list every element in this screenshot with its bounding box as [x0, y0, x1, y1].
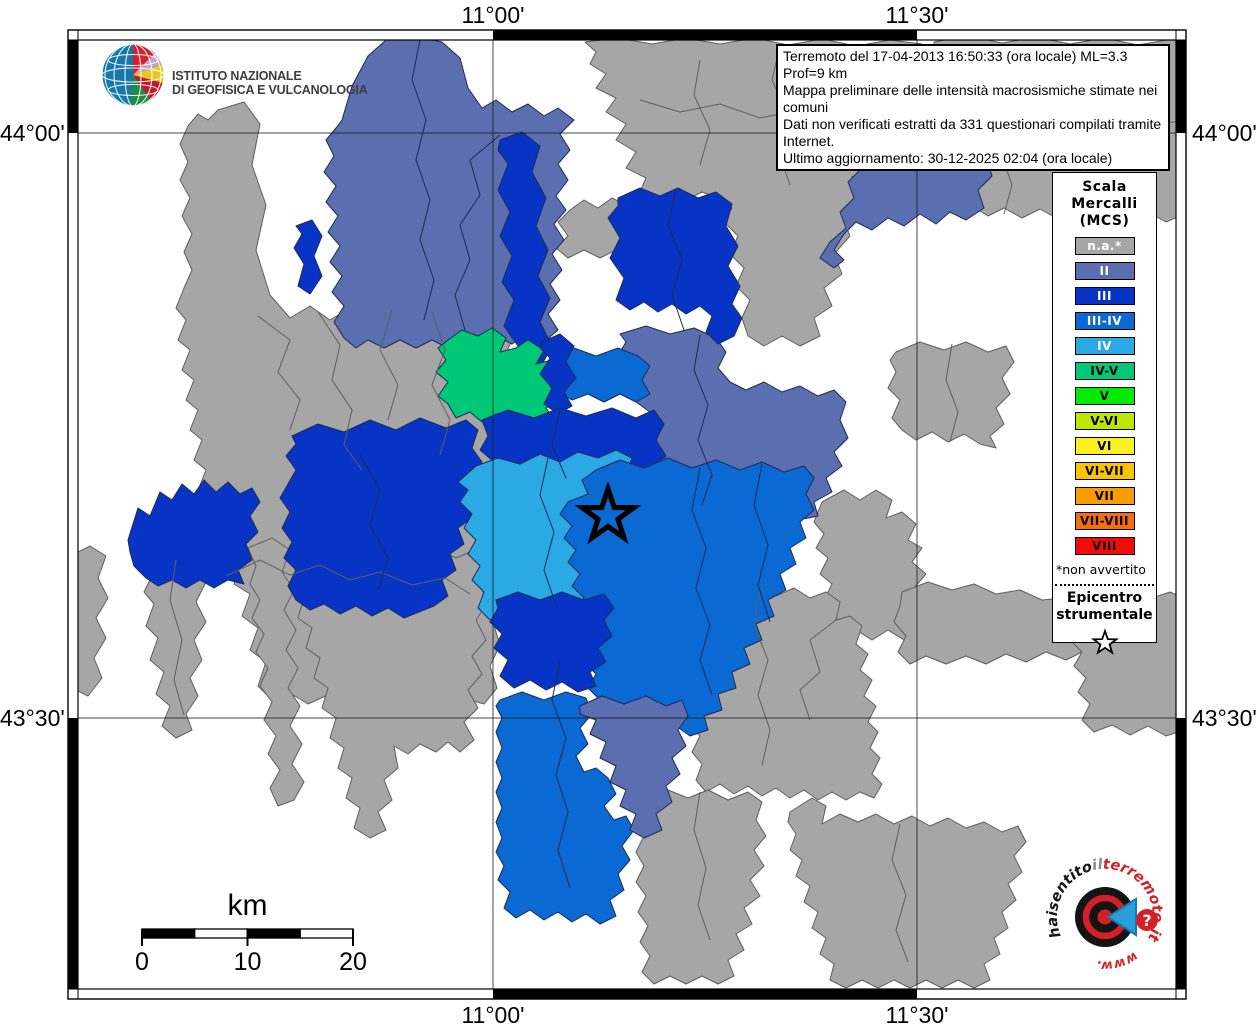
legend-swatch-VII: VII: [1075, 487, 1135, 505]
legend-swatch-IV-V: IV-V: [1075, 362, 1135, 380]
axis-label: 11°00': [461, 1002, 524, 1024]
info-line: Ultimo aggiornamento: 30-12-2025 02:04 (…: [783, 150, 1163, 167]
legend-swatch-V-VI: V-VI: [1075, 412, 1135, 430]
map-screenshot: km01020 Terremoto del 17-04-2013 16:50:3…: [0, 0, 1256, 1024]
scalebar-tick-label: 10: [234, 948, 262, 976]
scalebar-title: km: [228, 889, 268, 922]
legend-title: Scala Mercalli (MCS): [1053, 179, 1156, 230]
legend-swatch-V: V: [1075, 387, 1135, 405]
legend-scale-items: n.a.*IIIIIIII-IVIVIV-VVV-VIVIVI-VIIVIIVI…: [1053, 237, 1156, 555]
legend-divider: [1055, 584, 1154, 586]
info-line: Mappa preliminare delle intensità macros…: [783, 82, 1163, 116]
axis-label: 11°00': [461, 2, 524, 29]
legend-swatch-VIII: VIII: [1075, 537, 1135, 555]
axis-label: 43°30': [0, 705, 62, 732]
ingv-name: ISTITUTO NAZIONALE DI GEOFISICA E VULCAN…: [172, 70, 412, 97]
legend-swatch-VI: VI: [1075, 437, 1135, 455]
legend-swatch-III: III: [1075, 287, 1135, 305]
ingv-globe-icon: [100, 42, 166, 108]
legend-swatch-VII-VIII: VII-VIII: [1075, 512, 1135, 530]
earthquake-info-box: Terremoto del 17-04-2013 16:50:33 (ora l…: [776, 44, 1170, 171]
legend-swatch-III-IV: III-IV: [1075, 312, 1135, 330]
legend-panel: Scala Mercalli (MCS) n.a.*IIIIIIII-IVIVI…: [1052, 172, 1157, 643]
info-line: Dati non verificati estratti da 331 ques…: [783, 116, 1163, 150]
haisentitoilterremoto-logo: ? haisentitoilterremoto.it www.: [1030, 840, 1180, 990]
legend-footnote: *non avvertito: [1056, 562, 1156, 577]
axis-label: 44°00': [0, 120, 62, 147]
scalebar-tick-label: 0: [135, 948, 149, 976]
scalebar-tick-label: 20: [339, 948, 367, 976]
axis-label: 43°30': [1192, 705, 1256, 732]
axis-label: 11°30': [885, 1002, 948, 1024]
svg-text:www.: www.: [1095, 948, 1140, 973]
axis-label: 11°30': [885, 2, 948, 29]
legend-swatch-na: n.a.*: [1075, 237, 1135, 255]
info-line: Terremoto del 17-04-2013 16:50:33 (ora l…: [783, 48, 1163, 82]
ingv-logo: ISTITUTO NAZIONALE DI GEOFISICA E VULCAN…: [100, 42, 166, 113]
axis-label: 44°00': [1192, 120, 1256, 147]
legend-swatch-IV: IV: [1075, 337, 1135, 355]
legend-swatch-VI-VII: VI-VII: [1075, 462, 1135, 480]
epicenter-star-icon: [1090, 627, 1120, 657]
legend-swatch-II: II: [1075, 262, 1135, 280]
legend-epicenter-label: Epicentro strumentale: [1053, 590, 1156, 624]
